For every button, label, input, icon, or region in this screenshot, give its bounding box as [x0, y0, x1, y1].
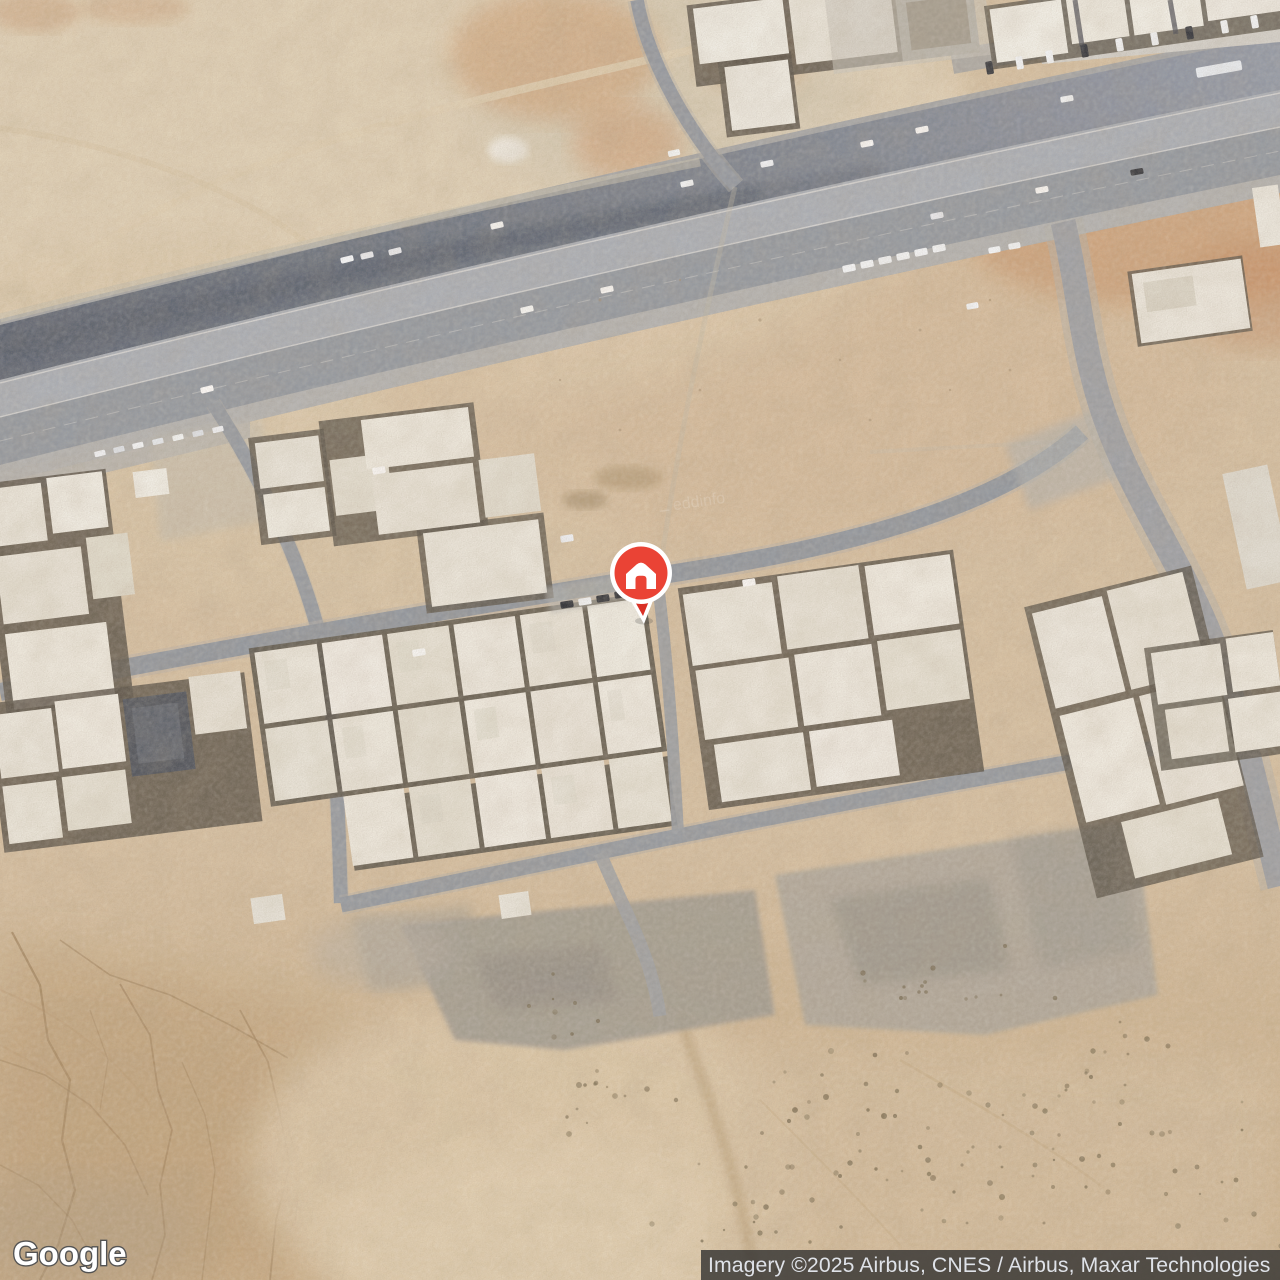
svg-text:Google: Google	[13, 1235, 127, 1272]
svg-text:Imagery ©2025 Airbus, CNES / A: Imagery ©2025 Airbus, CNES / Airbus, Max…	[708, 1254, 1270, 1277]
